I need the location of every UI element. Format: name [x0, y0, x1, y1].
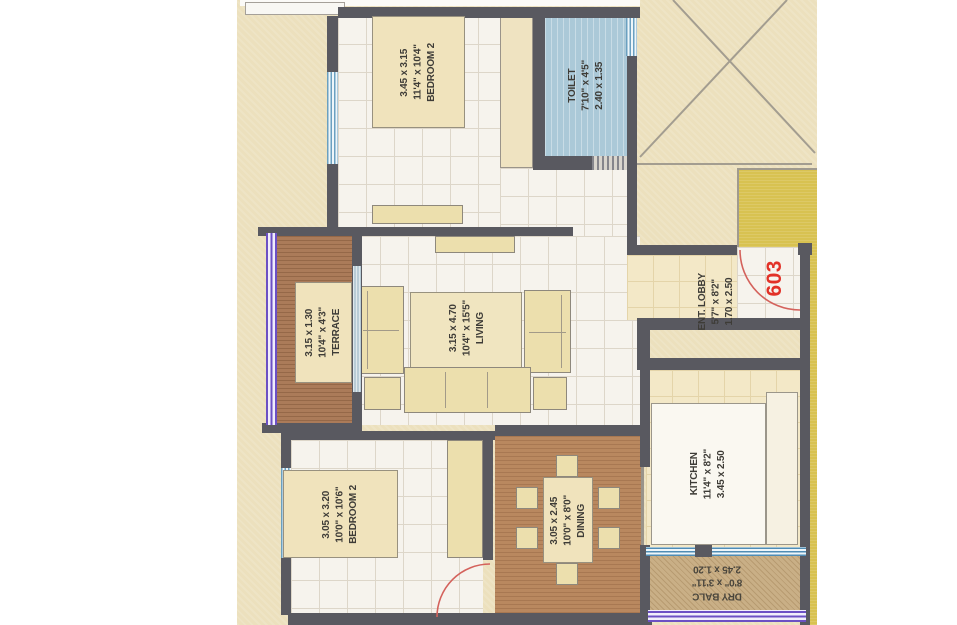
floor-plan: 3.45 x 3.15 11'4" x 10'4" BEDROOM 2 TOIL… [0, 0, 957, 625]
plan-linework [0, 0, 957, 625]
